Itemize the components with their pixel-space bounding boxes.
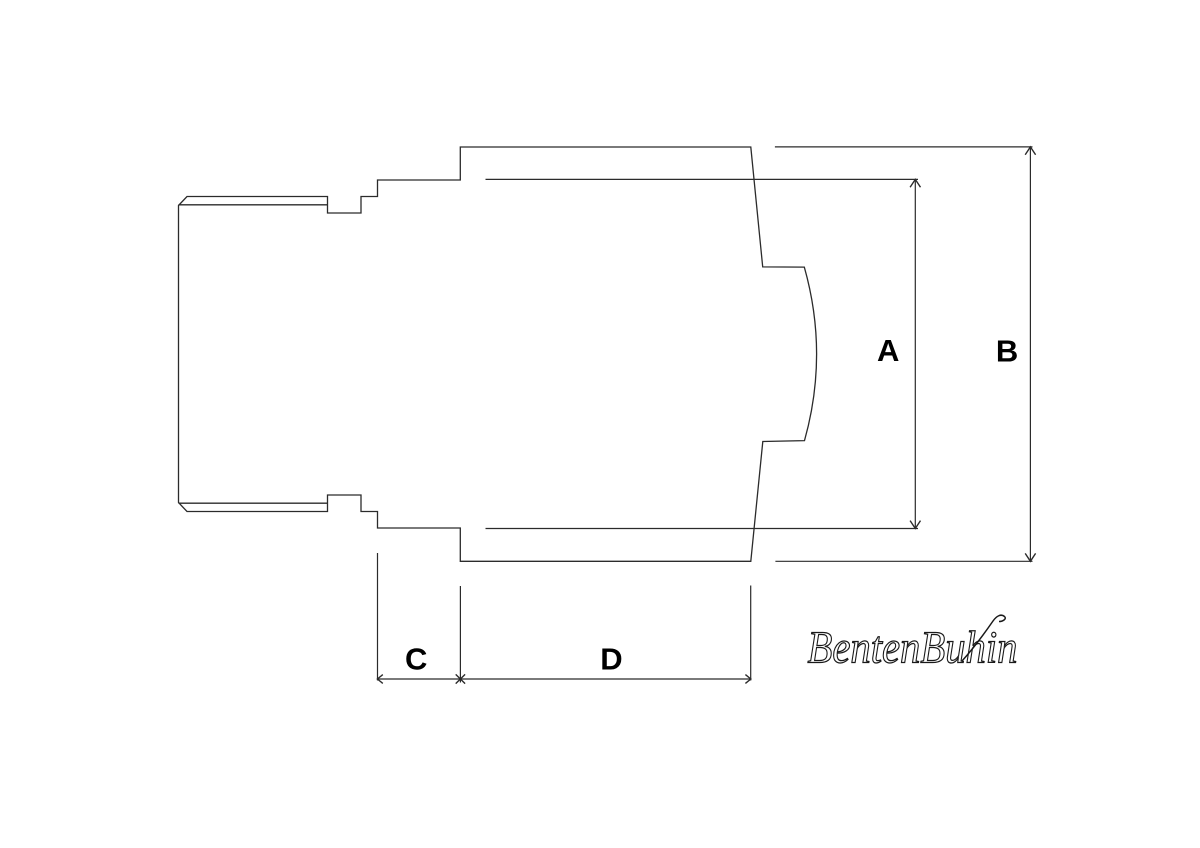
svg-text:D: D [600,641,622,676]
svg-text:A: A [877,333,899,368]
svg-text:C: C [405,641,427,676]
svg-text:B: B [996,333,1018,368]
